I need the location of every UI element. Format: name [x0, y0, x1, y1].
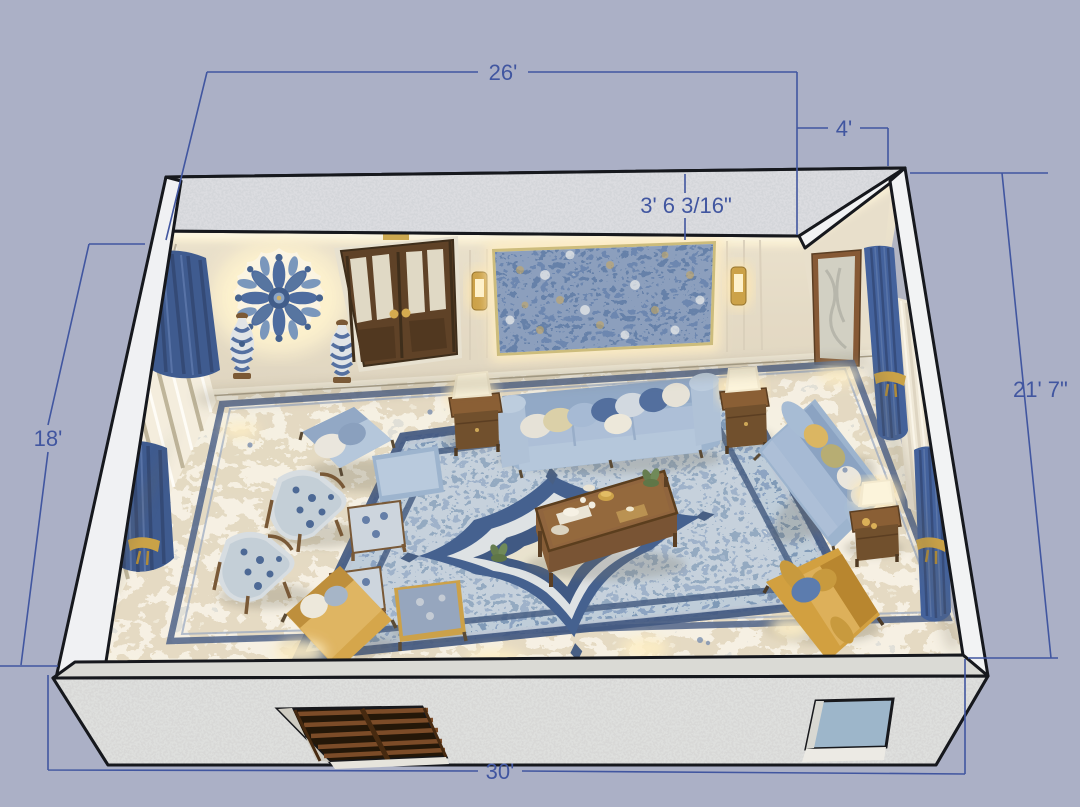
svg-text:26': 26' — [489, 60, 518, 85]
svg-text:21' 7": 21' 7" — [1013, 377, 1068, 402]
svg-text:3' 6 3/16": 3' 6 3/16" — [640, 193, 732, 218]
svg-text:30': 30' — [486, 759, 515, 784]
svg-text:18': 18' — [34, 426, 63, 451]
svg-text:4': 4' — [836, 116, 852, 141]
